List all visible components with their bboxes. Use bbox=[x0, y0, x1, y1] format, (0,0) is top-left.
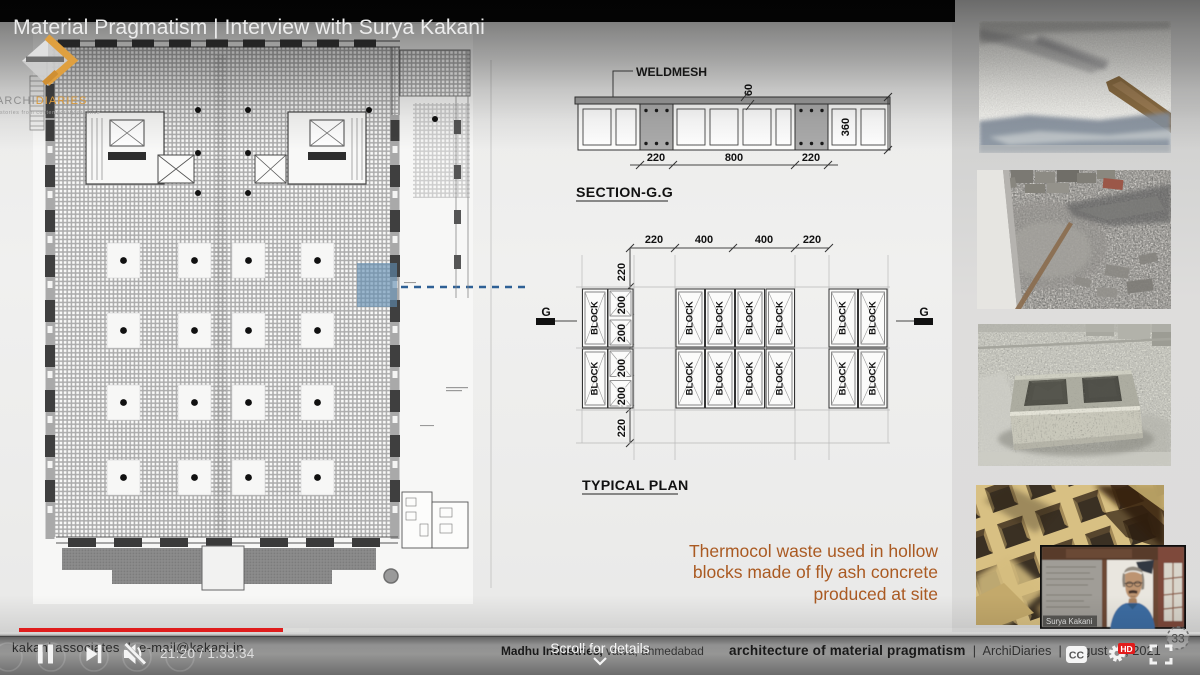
svg-text:800: 800 bbox=[725, 152, 743, 164]
svg-text:WELDMESH: WELDMESH bbox=[636, 65, 707, 79]
svg-text:220: 220 bbox=[647, 152, 665, 164]
svg-text:CC: CC bbox=[1069, 650, 1085, 662]
svg-text:360: 360 bbox=[840, 118, 852, 136]
svg-text:BLOCK: BLOCK bbox=[867, 361, 878, 395]
svg-text:stories from contemporary prac: stories from contemporary practice bbox=[0, 110, 100, 116]
svg-text:BLOCK: BLOCK bbox=[775, 301, 786, 335]
svg-text:200: 200 bbox=[616, 359, 628, 377]
svg-text:BLOCK: BLOCK bbox=[745, 301, 756, 335]
svg-text:ARCHIDIARIES: ARCHIDIARIES bbox=[0, 95, 87, 107]
svg-text:220: 220 bbox=[616, 419, 628, 437]
svg-text:BLOCK: BLOCK bbox=[715, 361, 726, 395]
svg-text:BLOCK: BLOCK bbox=[685, 301, 696, 335]
svg-text:BLOCK: BLOCK bbox=[745, 361, 756, 395]
svg-text:200: 200 bbox=[616, 387, 628, 405]
svg-text:BLOCK: BLOCK bbox=[775, 361, 786, 395]
svg-text:BLOCK: BLOCK bbox=[590, 301, 601, 335]
svg-text:400: 400 bbox=[695, 234, 713, 246]
svg-text:220: 220 bbox=[616, 263, 628, 281]
svg-text:BLOCK: BLOCK bbox=[867, 301, 878, 335]
svg-text:200: 200 bbox=[616, 324, 628, 342]
svg-text:SECTION-G.G: SECTION-G.G bbox=[576, 185, 673, 201]
svg-text:200: 200 bbox=[616, 296, 628, 314]
svg-text:BLOCK: BLOCK bbox=[838, 361, 849, 395]
svg-text:BLOCK: BLOCK bbox=[838, 301, 849, 335]
svg-text:G: G bbox=[919, 305, 928, 319]
svg-text:BLOCK: BLOCK bbox=[715, 301, 726, 335]
svg-text:220: 220 bbox=[802, 152, 820, 164]
svg-text:BLOCK: BLOCK bbox=[590, 361, 601, 395]
svg-text:BLOCK: BLOCK bbox=[685, 361, 696, 395]
svg-text:TYPICAL PLAN: TYPICAL PLAN bbox=[582, 478, 689, 494]
svg-text:G: G bbox=[541, 305, 550, 319]
svg-text:60: 60 bbox=[743, 84, 755, 96]
svg-text:220: 220 bbox=[645, 234, 663, 246]
svg-text:HD: HD bbox=[1120, 644, 1132, 654]
svg-text:220: 220 bbox=[803, 234, 821, 246]
svg-text:33: 33 bbox=[1171, 632, 1185, 646]
svg-text:400: 400 bbox=[755, 234, 773, 246]
